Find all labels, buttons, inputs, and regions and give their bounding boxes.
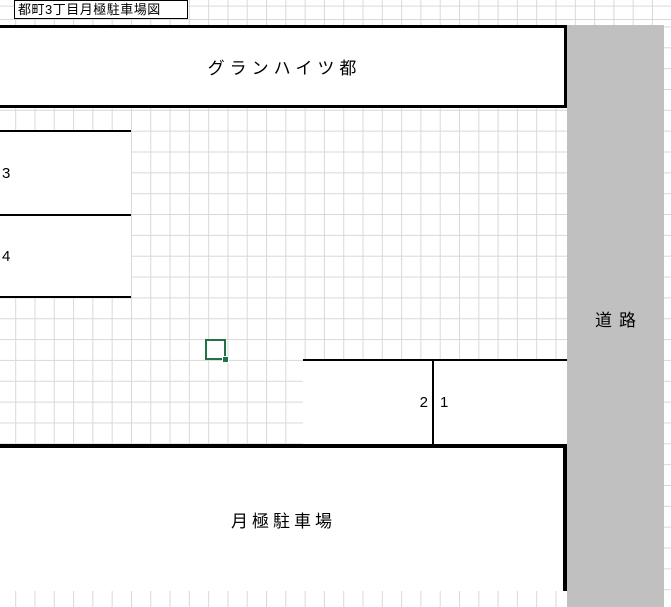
spreadsheet-grid[interactable]: 都町3丁目月極駐車場図 道路 グランハイツ都 3 4 2 1 月極駐車場 <box>0 0 671 607</box>
parking-spaces-2-1-box[interactable]: 2 1 <box>303 359 567 444</box>
building-label: グランハイツ都 <box>203 54 362 79</box>
parking-space-1[interactable]: 1 <box>434 361 567 444</box>
parking-space-2[interactable]: 2 <box>303 361 434 444</box>
space-2-label: 2 <box>420 394 428 411</box>
road-area[interactable]: 道路 <box>567 25 664 607</box>
building-box[interactable]: グランハイツ都 <box>0 25 567 108</box>
row-boundary-gridline <box>0 19 671 20</box>
road-label: 道路 <box>567 306 664 331</box>
parking-space-3[interactable]: 3 <box>0 130 131 214</box>
parking-space-4[interactable]: 4 <box>0 214 131 298</box>
space-4-label: 4 <box>0 248 10 265</box>
fill-handle[interactable] <box>222 356 229 363</box>
parking-lot-box[interactable]: 月極駐車場 <box>0 444 567 591</box>
space-1-label: 1 <box>440 394 448 411</box>
map-title: 都町3丁目月極駐車場図 <box>18 2 161 17</box>
parking-lot-label: 月極駐車場 <box>227 507 336 532</box>
cell-cursor[interactable] <box>205 339 226 360</box>
title-cell[interactable]: 都町3丁目月極駐車場図 <box>14 0 188 19</box>
space-3-label: 3 <box>0 165 10 182</box>
